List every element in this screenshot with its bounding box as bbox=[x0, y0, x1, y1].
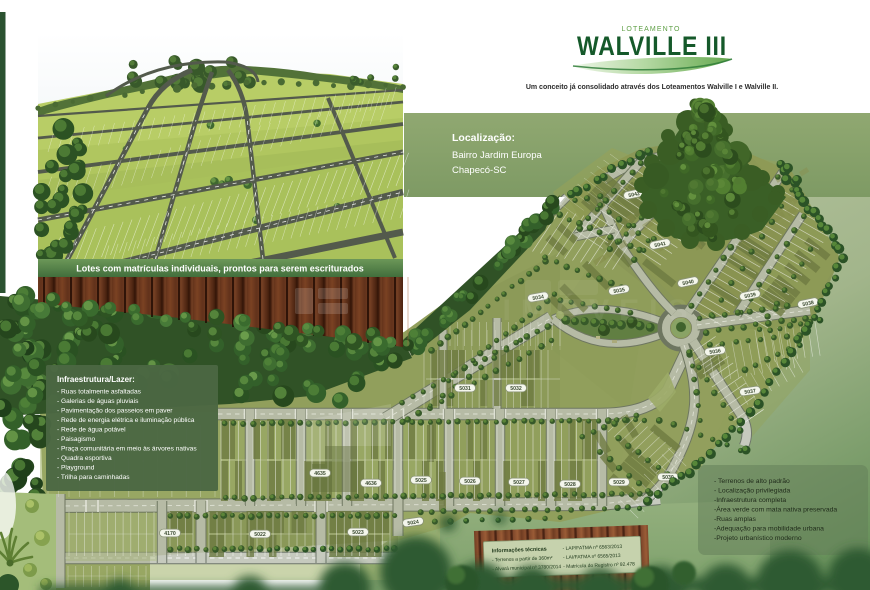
svg-text:5023: 5023 bbox=[352, 530, 364, 536]
svg-text:- Praça comunitária em meio às: - Praça comunitária em meio às árvores n… bbox=[57, 446, 197, 453]
svg-text:- Ruas totalmente asfaltadas: - Ruas totalmente asfaltadas bbox=[57, 389, 142, 396]
svg-text:4636: 4636 bbox=[365, 481, 377, 487]
svg-text:4635: 4635 bbox=[314, 471, 326, 477]
svg-text:-Infraestrutura completa: -Infraestrutura completa bbox=[714, 497, 786, 504]
svg-text:- Quadra esportiva: - Quadra esportiva bbox=[57, 455, 112, 462]
svg-text:Infraestrutura/Lazer:: Infraestrutura/Lazer: bbox=[57, 375, 135, 384]
svg-text:-Área verde com mata nativa pr: -Área verde com mata nativa preservada bbox=[714, 505, 837, 514]
svg-text:Chapecó-SC: Chapecó-SC bbox=[452, 165, 507, 176]
svg-text:4170: 4170 bbox=[164, 531, 176, 537]
svg-text:- Terrenos de alto padrão: - Terrenos de alto padrão bbox=[714, 478, 790, 485]
svg-text:- Rede de água potável: - Rede de água potável bbox=[57, 427, 126, 434]
svg-text:-Adequação para mobilidade urb: -Adequação para mobilidade urbana bbox=[714, 526, 824, 533]
svg-text:- Pavimentação dos passeios em: - Pavimentação dos passeios em paver bbox=[57, 408, 173, 415]
svg-text:5022: 5022 bbox=[254, 532, 266, 538]
svg-text:Um conceito já consolidado atr: Um conceito já consolidado através dos L… bbox=[526, 84, 778, 91]
svg-text:5032: 5032 bbox=[510, 386, 522, 392]
svg-text:- Trilha para caminhadas: - Trilha para caminhadas bbox=[57, 474, 130, 481]
svg-text:-Ruas amplas: -Ruas amplas bbox=[714, 516, 757, 523]
svg-text:Localização:: Localização: bbox=[452, 132, 515, 144]
svg-text:WALVILLE III: WALVILLE III bbox=[577, 31, 727, 61]
svg-text:- Rede de energia elétrica e i: - Rede de energia elétrica e iluminação … bbox=[57, 417, 195, 424]
svg-text:5027: 5027 bbox=[513, 480, 525, 486]
svg-text:Bairro Jardim Europa: Bairro Jardim Europa bbox=[452, 150, 542, 161]
svg-text:- Paisagismo: - Paisagismo bbox=[57, 436, 95, 443]
svg-text:-Projeto urbanístico moderno: -Projeto urbanístico moderno bbox=[714, 535, 802, 542]
svg-text:Lotes com matrículas individua: Lotes com matrículas individuais, pronto… bbox=[76, 264, 364, 274]
svg-text:5031: 5031 bbox=[459, 386, 471, 392]
svg-text:5026: 5026 bbox=[464, 479, 476, 485]
svg-text:5029: 5029 bbox=[613, 480, 625, 486]
svg-text:5028: 5028 bbox=[564, 482, 576, 488]
svg-text:- Playground: - Playground bbox=[57, 465, 95, 472]
svg-text:5025: 5025 bbox=[415, 478, 427, 484]
svg-text:- Localização privilegiada: - Localização privilegiada bbox=[714, 488, 791, 495]
svg-text:- Galerias de águas pluviais: - Galerias de águas pluviais bbox=[57, 398, 139, 405]
